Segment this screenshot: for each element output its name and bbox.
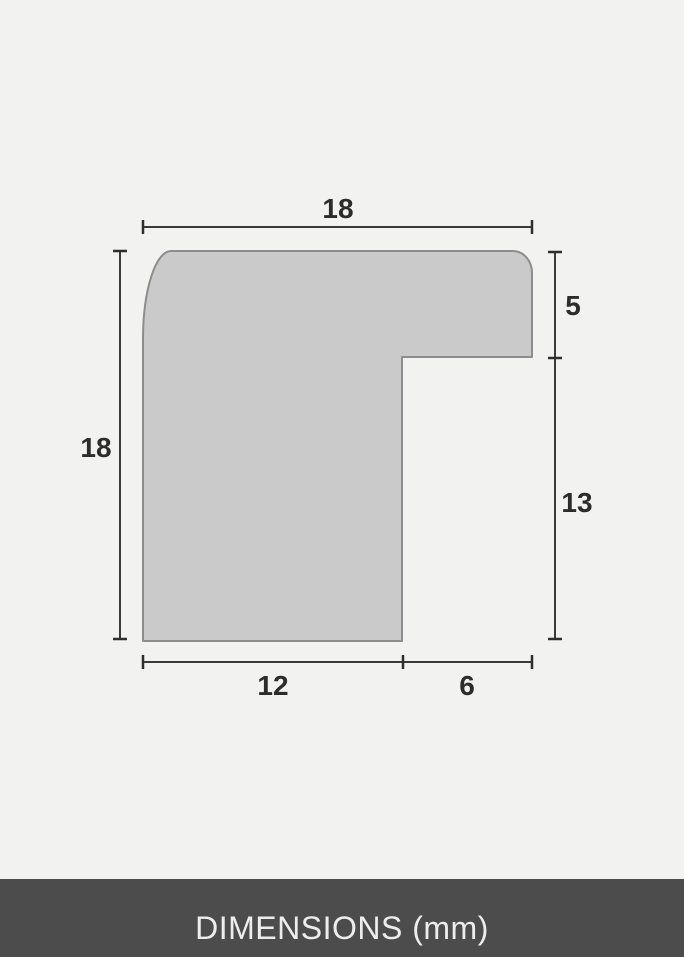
dimension-label-top-width: 18 — [322, 193, 353, 224]
footer-title: DIMENSIONS (mm) — [195, 912, 489, 944]
dimension-label-right-upper: 5 — [565, 290, 581, 321]
footer-bar: DIMENSIONS (mm) — [0, 879, 684, 957]
dimension-left-height: 18 — [80, 251, 127, 639]
dimension-bottom-widths: 12 6 — [143, 655, 532, 701]
dimension-right-depths: 5 13 — [548, 252, 593, 639]
profile-shape — [143, 251, 532, 641]
frame-dimensions-figure: 18 18 5 13 12 6 DIMENSIONS — [0, 0, 684, 957]
dimension-label-bottom-right: 6 — [459, 670, 475, 701]
dimension-top-width: 18 — [143, 193, 532, 234]
dimension-label-bottom-left: 12 — [257, 670, 288, 701]
dimension-label-right-lower: 13 — [561, 487, 592, 518]
dimension-label-left-height: 18 — [80, 432, 111, 463]
frame-profile-diagram: 18 18 5 13 12 6 — [0, 0, 684, 879]
